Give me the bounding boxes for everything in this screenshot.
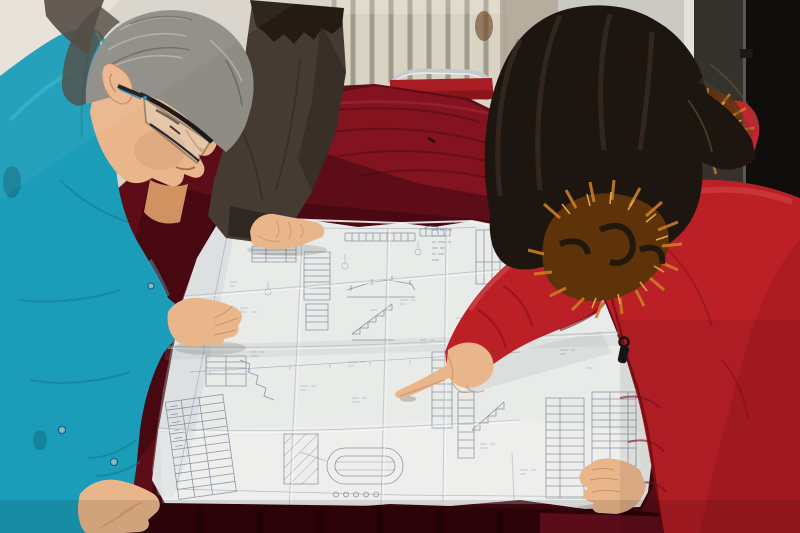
wall-stain [475, 11, 493, 41]
sleeve-snap-button [148, 283, 154, 289]
door-latch-hole [740, 49, 753, 58]
jacket-stain-2 [33, 430, 47, 450]
photo-canvas [0, 0, 800, 533]
cuff-snap-button-2 [111, 459, 118, 466]
cuff-snap-button [59, 427, 66, 434]
right-vignette [620, 320, 800, 533]
photo-blueprint-review [0, 0, 800, 533]
